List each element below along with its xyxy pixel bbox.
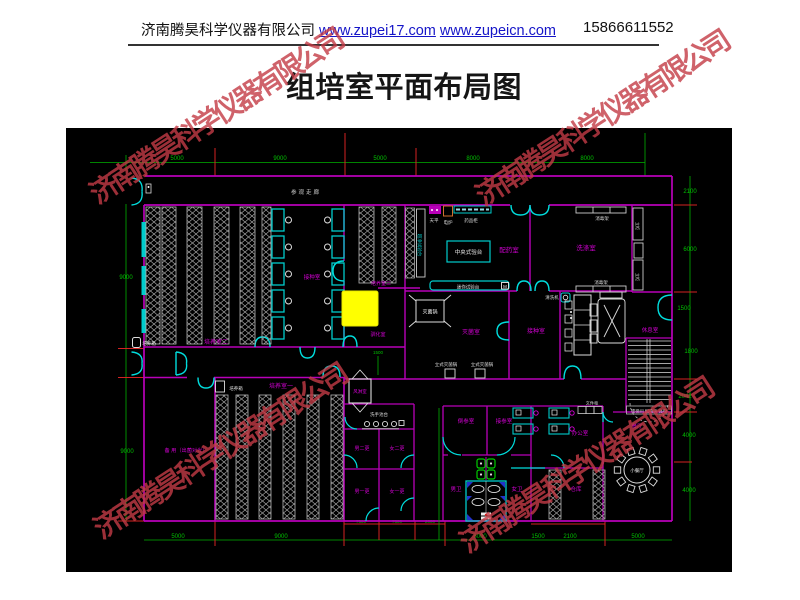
svg-text:驯化室: 驯化室 [370,331,385,338]
svg-text:立式灭菌锅: 立式灭菌锅 [471,361,494,368]
svg-text:9000: 9000 [274,534,288,540]
svg-text:9000: 9000 [273,156,287,162]
svg-text:培养室一: 培养室一 [269,382,293,390]
svg-text:男一更: 男一更 [354,489,369,495]
svg-text:楼梯间 配电房 强电: 楼梯间 配电房 强电 [631,408,668,415]
svg-text:9000: 9000 [120,449,134,455]
svg-text:女一更: 女一更 [389,488,404,495]
svg-text:灭菌锅: 灭菌锅 [422,309,437,316]
svg-text:消毒架: 消毒架 [595,215,609,222]
svg-text:迷你试验台: 迷你试验台 [457,284,480,291]
svg-text:1500: 1500 [373,350,384,355]
svg-text:餐厅: 餐厅 [631,422,643,430]
svg-text:风淋室: 风淋室 [353,388,367,395]
svg-text:配药室: 配药室 [499,245,519,254]
svg-text:休息室: 休息室 [642,326,659,334]
svg-text:办公室: 办公室 [572,429,589,437]
svg-text:立柜: 立柜 [635,222,641,230]
svg-text:2100: 2100 [683,189,697,195]
svg-text:接参室: 接参室 [496,417,513,425]
svg-text:参观走廊: 参观走廊 [291,188,321,196]
svg-text:立柜: 立柜 [635,273,641,281]
svg-text:接种室: 接种室 [304,273,321,281]
svg-text:8000: 8000 [473,534,487,540]
svg-text:备 用（出菌对光）: 备 用（出菌对光） [165,446,208,454]
svg-text:清洗机: 清洗机 [545,294,559,301]
svg-text:培养室二: 培养室二 [204,338,228,346]
svg-text:1500: 1500 [677,306,691,312]
svg-text:4000: 4000 [682,488,696,494]
svg-text:培养室三: 培养室三 [371,280,391,287]
svg-text:5000: 5000 [171,534,185,540]
svg-text:电炉: 电炉 [444,219,453,226]
svg-text:立式灭菌锅: 立式灭菌锅 [435,361,458,368]
svg-text:接种室: 接种室 [527,327,545,335]
svg-text:消毒架: 消毒架 [594,279,608,286]
svg-text:小餐厅: 小餐厅 [630,467,644,474]
svg-text:2100: 2100 [563,534,577,540]
svg-text:女卫: 女卫 [511,485,523,493]
svg-text:洗涤室: 洗涤室 [576,243,596,252]
svg-text:洗手池台: 洗手池台 [370,411,388,418]
svg-text:8000: 8000 [580,156,594,162]
svg-text:男二更: 男二更 [354,446,369,452]
svg-text:4000: 4000 [682,433,696,439]
svg-text:M: M [503,284,507,289]
svg-text:培养箱: 培养箱 [229,385,243,392]
svg-text:男卫: 男卫 [450,486,462,493]
svg-text:灭菌室: 灭菌室 [462,328,480,336]
svg-text:5000: 5000 [631,534,645,540]
svg-text:文件柜: 文件柜 [586,400,599,407]
svg-text:仓库: 仓库 [570,485,582,493]
svg-text:天平: 天平 [430,218,439,224]
svg-text:1800: 1800 [684,349,698,355]
svg-text:中央式验台: 中央式验台 [455,248,483,256]
svg-text:女二更: 女二更 [389,445,404,452]
svg-text:药品柜: 药品柜 [464,217,478,224]
svg-text:2042: 2042 [678,394,692,400]
svg-text:倒参室: 倒参室 [458,417,475,425]
svg-text:5000: 5000 [170,156,184,162]
svg-text:9000: 9000 [119,275,133,281]
svg-text:超净试验台: 超净试验台 [416,234,423,257]
svg-text:1500: 1500 [531,534,545,540]
svg-text:6000: 6000 [683,247,697,253]
svg-text:培养箱: 培养箱 [142,340,156,347]
svg-text:8000: 8000 [466,156,480,162]
svg-text:5000: 5000 [373,156,387,162]
